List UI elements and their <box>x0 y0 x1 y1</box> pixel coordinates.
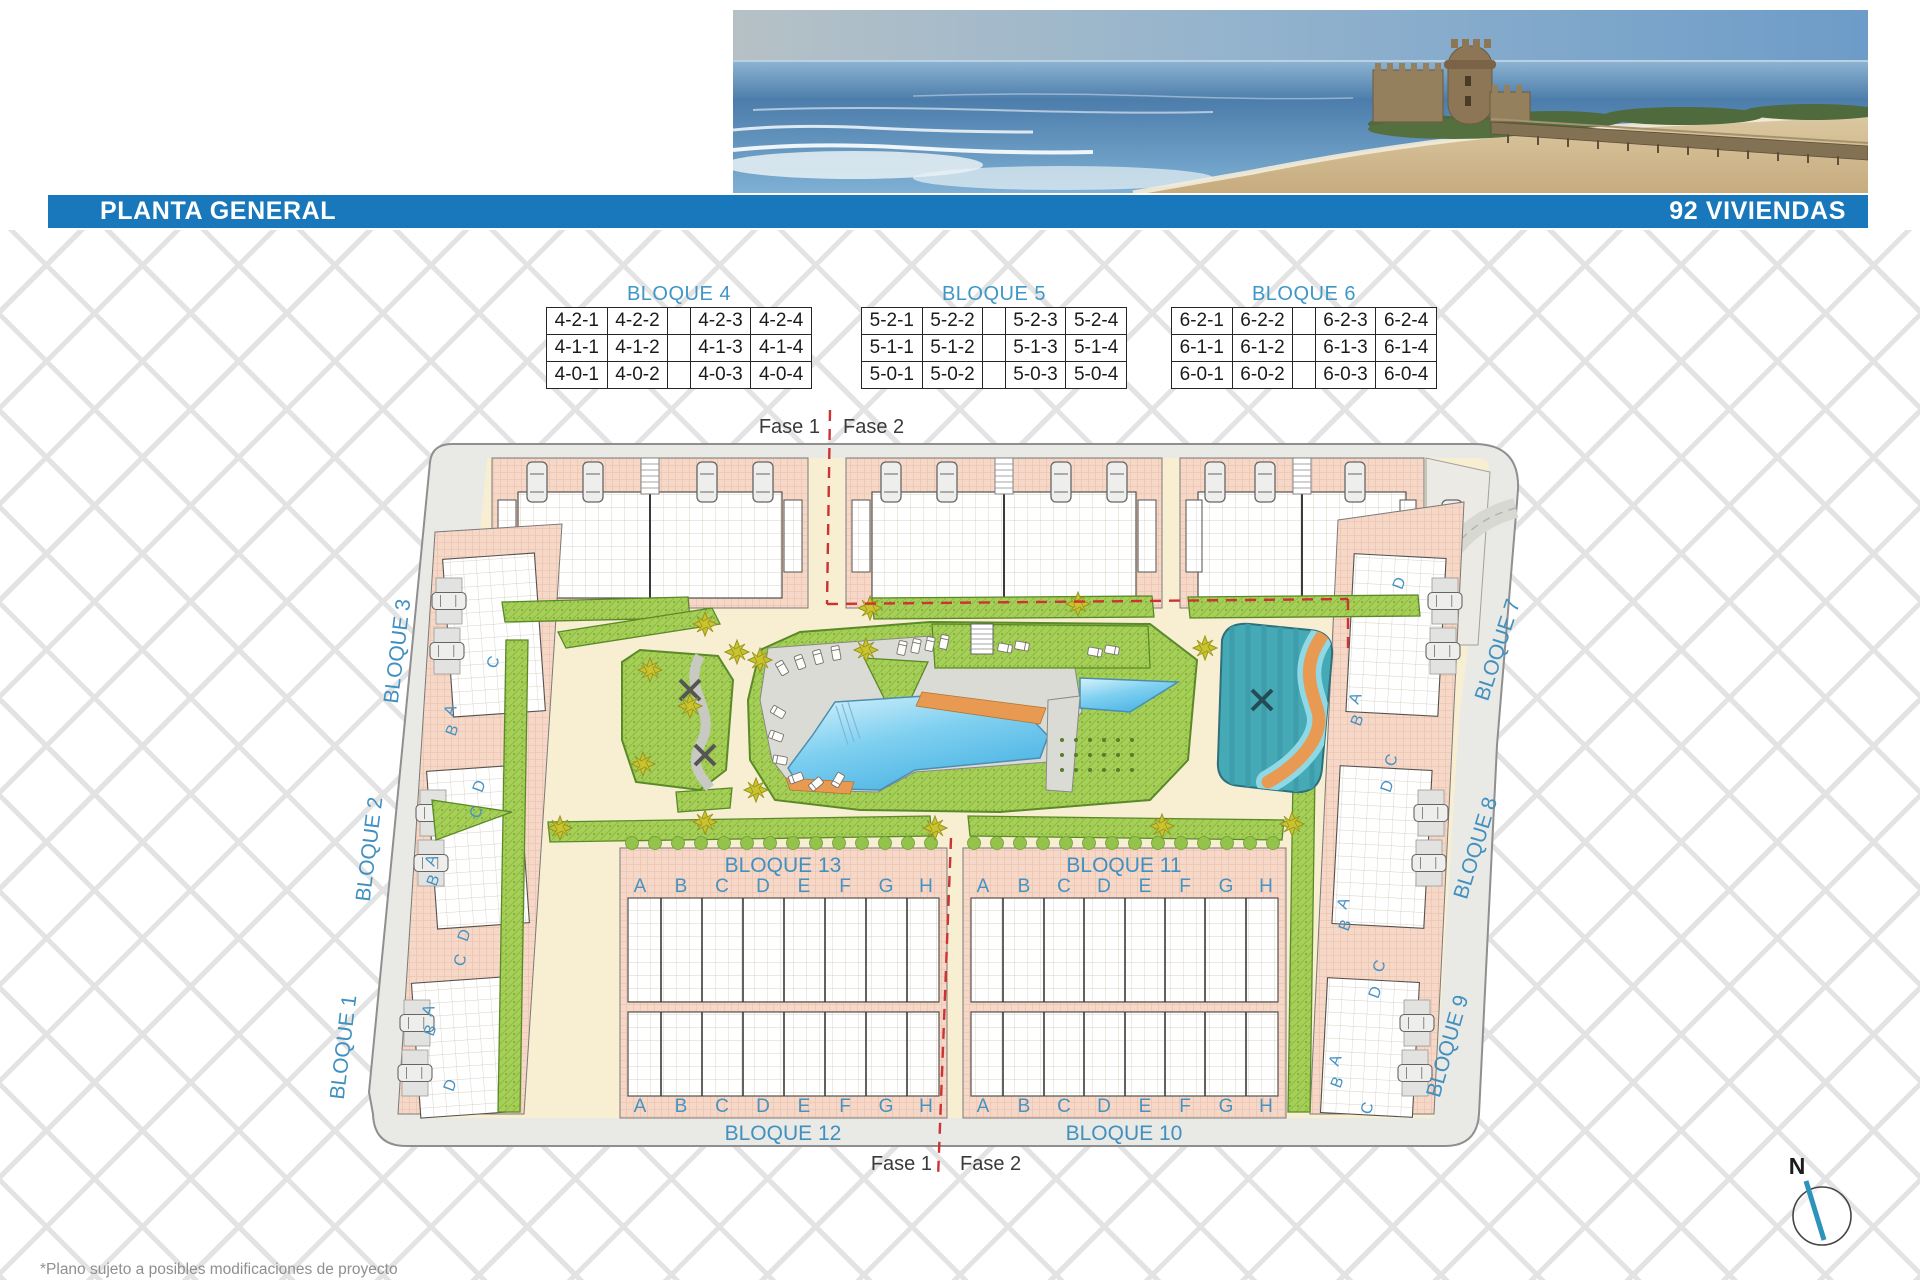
table-gap-cell <box>1293 362 1315 389</box>
unit-letter: B <box>1018 1096 1031 1117</box>
road-label-bloque-10: BLOQUE 10 <box>1066 1122 1183 1145</box>
unit-cell: 6-0-2 <box>1232 362 1293 389</box>
bloque-6-table: BLOQUE 6 6-2-16-2-26-2-36-2-4 6-1-16-1-2… <box>1171 283 1437 389</box>
phase-label-bottom-fase2: Fase 2 <box>960 1153 1021 1175</box>
unit-cell: 5-0-3 <box>1005 362 1066 389</box>
unit-letter: F <box>1179 876 1191 897</box>
unit-cell: 6-2-4 <box>1376 308 1437 335</box>
phase-label-bottom-fase1: Fase 1 <box>871 1153 932 1175</box>
bloque-6-units: 6-2-16-2-26-2-36-2-4 6-1-16-1-26-1-36-1-… <box>1171 307 1437 389</box>
block-label-bloque-11: BLOQUE 11 <box>1066 854 1181 877</box>
block-label-bloque-13: BLOQUE 13 <box>725 854 842 877</box>
table-gap-cell <box>668 308 690 335</box>
unit-letter: H <box>919 1096 933 1117</box>
bloque-5-table: BLOQUE 5 5-2-15-2-25-2-35-2-4 5-1-15-1-2… <box>861 283 1127 389</box>
unit-letter: E <box>798 1096 811 1117</box>
unit-cell: 4-2-1 <box>547 308 608 335</box>
table-gap-cell <box>1293 335 1315 362</box>
top-buildings-bloque-5 <box>846 458 1162 608</box>
phase-label-top-fase1: Fase 1 <box>759 416 820 438</box>
unit-cell: 5-2-1 <box>862 308 923 335</box>
bottom-block-11-10 <box>963 837 1286 1119</box>
unit-letter: B <box>675 1096 688 1117</box>
unit-cell: 6-1-3 <box>1315 335 1376 362</box>
unit-letter: D <box>756 1096 770 1117</box>
playground-park <box>622 650 733 790</box>
disclaimer-footnote: *Plano sujeto a posibles modificaciones … <box>40 1261 398 1279</box>
table-gap-cell <box>983 335 1005 362</box>
unit-cell: 5-0-2 <box>922 362 983 389</box>
unit-cell: 4-2-3 <box>690 308 751 335</box>
unit-cell: 5-2-2 <box>922 308 983 335</box>
unit-cell: 5-1-4 <box>1066 335 1127 362</box>
table-gap-cell <box>1293 308 1315 335</box>
table-gap-cell <box>668 335 690 362</box>
unit-cell: 5-1-1 <box>862 335 923 362</box>
beach-photo <box>733 10 1868 193</box>
unit-cell: 6-1-4 <box>1376 335 1437 362</box>
table-gap-cell <box>668 362 690 389</box>
unit-cell: 4-1-2 <box>607 335 668 362</box>
unit-letter: D <box>756 876 770 897</box>
unit-letter: A <box>977 876 990 897</box>
unit-cell: 4-2-4 <box>751 308 812 335</box>
unit-letter: G <box>1219 876 1234 897</box>
site-plan: BLOQUE 3 BLOQUE 2 BLOQUE 1 BLOQUE 7 BLOQ… <box>330 405 1920 1280</box>
unit-cell: 6-2-1 <box>1172 308 1233 335</box>
unit-cell: 4-2-2 <box>607 308 668 335</box>
unit-letter: F <box>1179 1096 1191 1117</box>
compass-north-label: N <box>1789 1153 1806 1179</box>
unit-letter: D <box>1097 876 1111 897</box>
unit-letter: A <box>977 1096 990 1117</box>
unit-cell: 4-0-4 <box>751 362 812 389</box>
road-label-bloque-2: BLOQUE 2 <box>352 796 388 903</box>
unit-letter: E <box>1139 876 1152 897</box>
unit-letter: H <box>1259 1096 1273 1117</box>
unit-letter: A <box>634 1096 647 1117</box>
table-gap-cell <box>983 308 1005 335</box>
unit-cell: 4-1-4 <box>751 335 812 362</box>
unit-cell: 5-1-2 <box>922 335 983 362</box>
title-bar: PLANTA GENERAL 92 VIVIENDAS <box>48 195 1868 228</box>
units-count-label: 92 VIVIENDAS <box>1669 197 1846 226</box>
unit-letter: C <box>1057 1096 1071 1117</box>
unit-letter: C <box>715 1096 729 1117</box>
unit-letter: B <box>675 876 688 897</box>
unit-letter: G <box>879 876 894 897</box>
table-gap-cell <box>983 362 1005 389</box>
bloque-4-units: 4-2-14-2-24-2-34-2-4 4-1-14-1-24-1-34-1-… <box>546 307 812 389</box>
bloque-6-table-title: BLOQUE 6 <box>1171 283 1437 305</box>
unit-letter: G <box>879 1096 894 1117</box>
unit-letter: H <box>1259 876 1273 897</box>
bloque-4-table: BLOQUE 4 4-2-14-2-24-2-34-2-4 4-1-14-1-2… <box>546 283 812 389</box>
unit-letter: E <box>798 876 811 897</box>
unit-letter: C <box>715 876 729 897</box>
pool-garden <box>748 622 1197 812</box>
unit-letter: F <box>839 876 851 897</box>
unit-letter: H <box>919 876 933 897</box>
unit-cell: 5-2-4 <box>1066 308 1127 335</box>
unit-cell: 6-0-3 <box>1315 362 1376 389</box>
bottom-block-13-12 <box>620 837 947 1119</box>
unit-cell: 6-2-3 <box>1315 308 1376 335</box>
unit-letter: E <box>1139 1096 1152 1117</box>
unit-cell: 6-0-4 <box>1376 362 1437 389</box>
unit-cell: 4-0-1 <box>547 362 608 389</box>
phase-label-top-fase2: Fase 2 <box>843 416 904 438</box>
unit-cell: 6-1-1 <box>1172 335 1233 362</box>
unit-cell: 5-2-3 <box>1005 308 1066 335</box>
unit-cell: 6-2-2 <box>1232 308 1293 335</box>
unit-cell: 5-1-3 <box>1005 335 1066 362</box>
unit-cell: 6-1-2 <box>1232 335 1293 362</box>
unit-cell: 4-1-1 <box>547 335 608 362</box>
road-label-bloque-1: BLOQUE 1 <box>330 994 361 1101</box>
unit-cell: 5-0-4 <box>1066 362 1127 389</box>
unit-letter: G <box>1219 1096 1234 1117</box>
compass-icon: N <box>1789 1153 1851 1245</box>
unit-letter: B <box>1018 876 1031 897</box>
unit-cell: 4-0-3 <box>690 362 751 389</box>
unit-letter: D <box>1097 1096 1111 1117</box>
unit-letter: F <box>839 1096 851 1117</box>
bloque-4-table-title: BLOQUE 4 <box>546 283 812 305</box>
spa-water-feature <box>1218 620 1332 800</box>
unit-letter: A <box>634 876 647 897</box>
unit-letter: C <box>1057 876 1071 897</box>
road-label-bloque-12: BLOQUE 12 <box>725 1122 842 1145</box>
unit-cell: 6-0-1 <box>1172 362 1233 389</box>
unit-cell: 4-0-2 <box>607 362 668 389</box>
unit-cell: 5-0-1 <box>862 362 923 389</box>
brochure-page: PLANTA GENERAL 92 VIVIENDAS BLOQUE 4 4-2… <box>0 0 1920 1280</box>
bloque-5-units: 5-2-15-2-25-2-35-2-4 5-1-15-1-25-1-35-1-… <box>861 307 1127 389</box>
page-title: PLANTA GENERAL <box>100 197 336 226</box>
bloque-5-table-title: BLOQUE 5 <box>861 283 1127 305</box>
unit-cell: 4-1-3 <box>690 335 751 362</box>
